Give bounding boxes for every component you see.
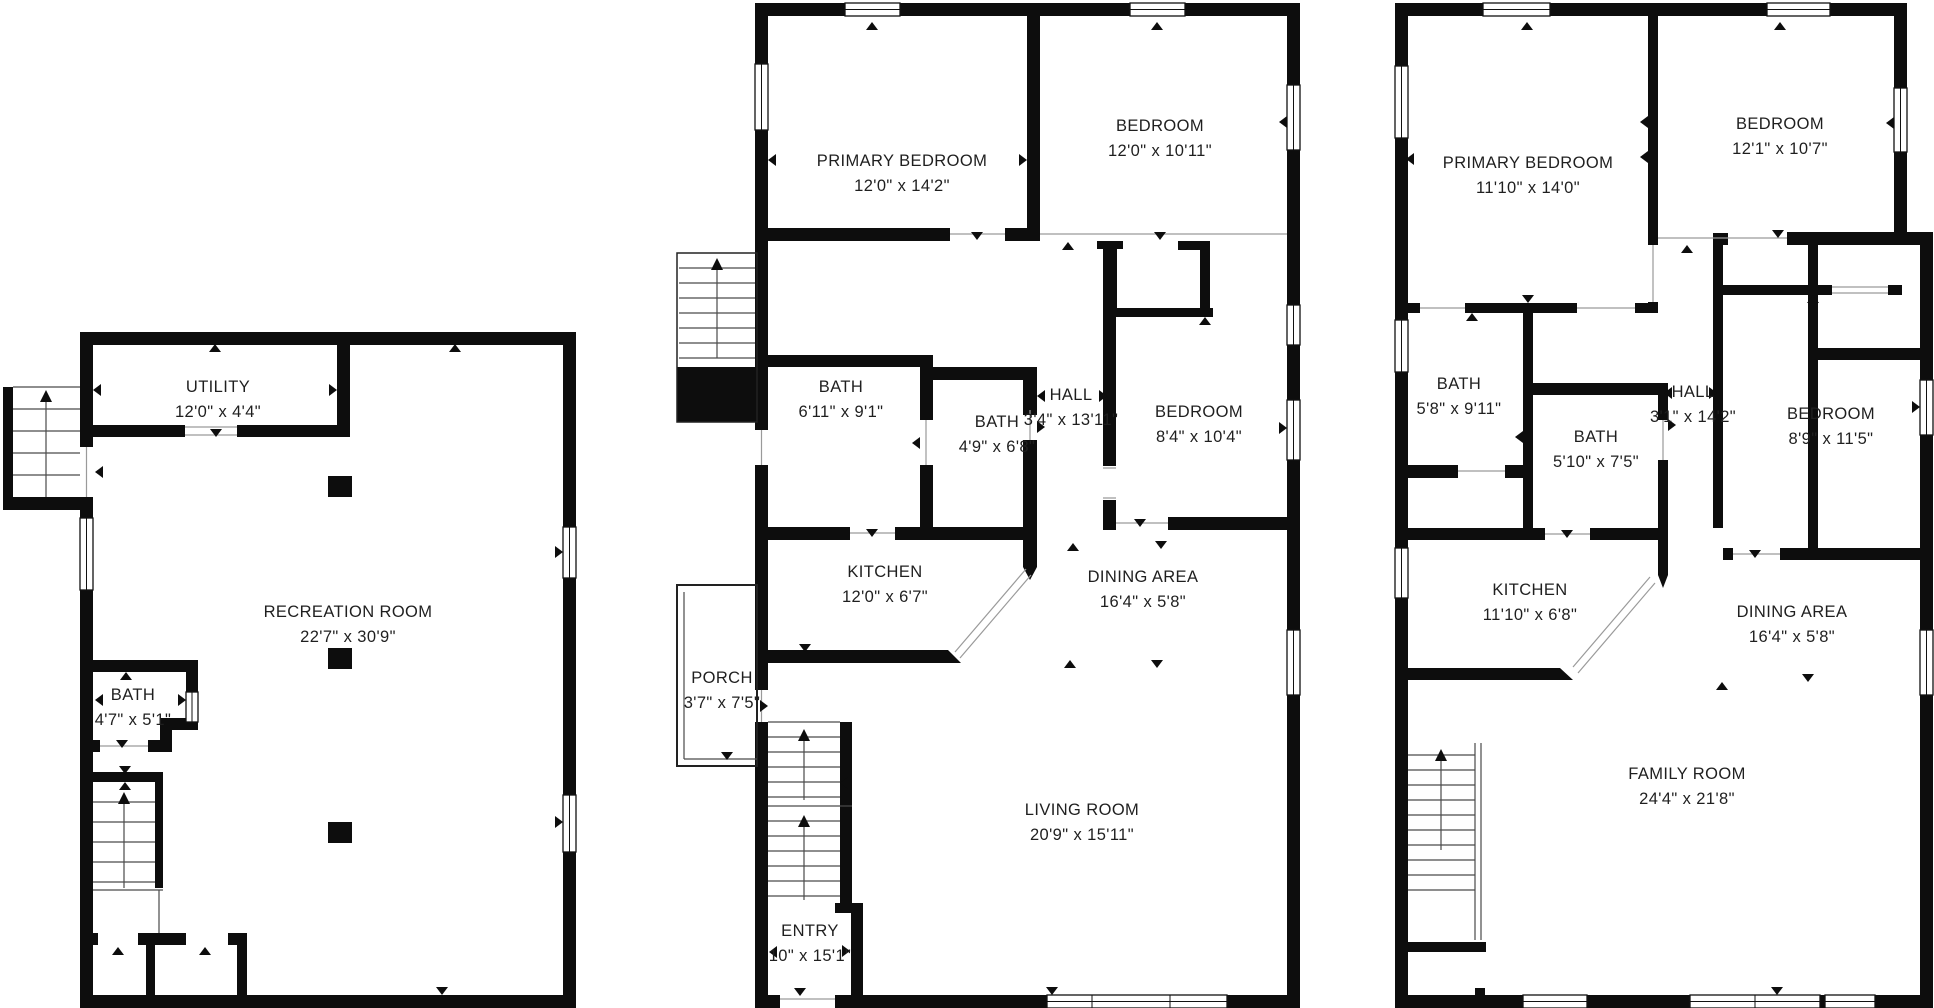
basement-walls — [3, 332, 576, 1008]
room-name: PORCH — [684, 666, 761, 691]
room-dims: 16'4" x 5'8" — [1737, 625, 1848, 650]
room-name: RECREATION ROOM — [264, 600, 433, 625]
room-label-main-primary-bedroom: PRIMARY BEDROOM 12'0" x 14'2" — [817, 149, 987, 199]
room-label-main-dining-area: DINING AREA 16'4" x 5'8" — [1088, 565, 1199, 615]
room-dims: 12'1" x 10'7" — [1732, 137, 1828, 162]
room-dims: 4'9" x 6'8" — [959, 435, 1036, 460]
room-name: UTILITY — [175, 375, 261, 400]
room-name: BEDROOM — [1155, 400, 1243, 425]
room-dims: 3'7" x 7'5" — [684, 691, 761, 716]
room-label-main-bedroom-north: BEDROOM 12'0" x 10'11" — [1108, 114, 1212, 164]
main-interior-stairs — [768, 722, 852, 900]
room-label-basement-bath: BATH 4'7" x 5'1" — [95, 683, 172, 733]
room-dims: 4'7" x 5'1" — [95, 708, 172, 733]
room-name: ENTRY — [769, 919, 852, 944]
room-dims: 5'10" x 7'5" — [1553, 450, 1639, 475]
room-label-main-entry: ENTRY 10" x 15'1" — [769, 919, 852, 969]
room-name: BEDROOM — [1787, 402, 1875, 427]
room-name: BATH — [95, 683, 172, 708]
room-name: BEDROOM — [1108, 114, 1212, 139]
room-name: DINING AREA — [1088, 565, 1199, 590]
room-name: BATH — [1553, 425, 1639, 450]
room-label-upper-dining-area: DINING AREA 16'4" x 5'8" — [1737, 600, 1848, 650]
room-dims: 16'4" x 5'8" — [1088, 590, 1199, 615]
room-label-main-bedroom-east: BEDROOM 8'4" x 10'4" — [1155, 400, 1243, 450]
room-name: KITCHEN — [842, 560, 928, 585]
room-label-upper-bedroom-east: BEDROOM 8'9" x 11'5" — [1787, 402, 1875, 452]
room-label-upper-bath-2: BATH 5'10" x 7'5" — [1553, 425, 1639, 475]
upper-stairs — [1408, 743, 1481, 940]
room-dims: 12'0" x 14'2" — [817, 174, 987, 199]
room-dims: 11'10" x 6'8" — [1483, 603, 1577, 628]
room-name: PRIMARY BEDROOM — [817, 149, 987, 174]
room-label-upper-kitchen: KITCHEN 11'10" x 6'8" — [1483, 578, 1577, 628]
room-dims: 11'10" x 14'0" — [1443, 176, 1613, 201]
room-dims: 3'1" x 14'2" — [1650, 405, 1736, 430]
main-door-markers — [711, 22, 1287, 996]
room-dims: 6'11" x 9'1" — [799, 400, 884, 425]
room-dims: 8'4" x 10'4" — [1155, 425, 1243, 450]
room-label-main-kitchen: KITCHEN 12'0" x 6'7" — [842, 560, 928, 610]
floorplan-canvas: UTILITY 12'0" x 4'4" RECREATION ROOM 22'… — [0, 0, 1934, 1008]
room-name: HALL — [1650, 380, 1736, 405]
room-dims: 10" x 15'1" — [769, 944, 852, 969]
room-dims: 22'7" x 30'9" — [264, 625, 433, 650]
room-label-upper-bath-1: BATH 5'8" x 9'11" — [1417, 372, 1502, 422]
room-dims: 5'8" x 9'11" — [1417, 397, 1502, 422]
room-label-upper-hall: HALL 3'1" x 14'2" — [1650, 380, 1736, 430]
room-dims: 24'4" x 21'8" — [1628, 787, 1745, 812]
room-label-utility: UTILITY 12'0" x 4'4" — [175, 375, 261, 425]
room-name: LIVING ROOM — [1025, 798, 1139, 823]
room-dims: 12'0" x 6'7" — [842, 585, 928, 610]
room-name: DINING AREA — [1737, 600, 1848, 625]
room-name: HALL — [1024, 383, 1118, 408]
room-name: BATH — [799, 375, 884, 400]
room-label-upper-primary-bedroom: PRIMARY BEDROOM 11'10" x 14'0" — [1443, 151, 1613, 201]
room-label-main-living-room: LIVING ROOM 20'9" x 15'11" — [1025, 798, 1139, 848]
room-name: PRIMARY BEDROOM — [1443, 151, 1613, 176]
room-name: KITCHEN — [1483, 578, 1577, 603]
plan-basement — [3, 332, 576, 1008]
room-dims: 12'0" x 4'4" — [175, 400, 261, 425]
room-dims: 3'4" x 13'11" — [1024, 408, 1118, 433]
room-dims: 8'9" x 11'5" — [1787, 427, 1875, 452]
room-label-main-hall: HALL 3'4" x 13'11" — [1024, 383, 1118, 433]
room-dims: 12'0" x 10'11" — [1108, 139, 1212, 164]
room-name: FAMILY ROOM — [1628, 762, 1745, 787]
room-name: BATH — [1417, 372, 1502, 397]
room-label-upper-family-room: FAMILY ROOM 24'4" x 21'8" — [1628, 762, 1745, 812]
room-dims: 20'9" x 15'11" — [1025, 823, 1139, 848]
room-label-upper-bedroom-north: BEDROOM 12'1" x 10'7" — [1732, 112, 1828, 162]
room-label-recreation-room: RECREATION ROOM 22'7" x 30'9" — [264, 600, 433, 650]
room-name: BEDROOM — [1732, 112, 1828, 137]
room-label-main-porch: PORCH 3'7" x 7'5" — [684, 666, 761, 716]
room-label-main-bath-1: BATH 6'11" x 9'1" — [799, 375, 884, 425]
